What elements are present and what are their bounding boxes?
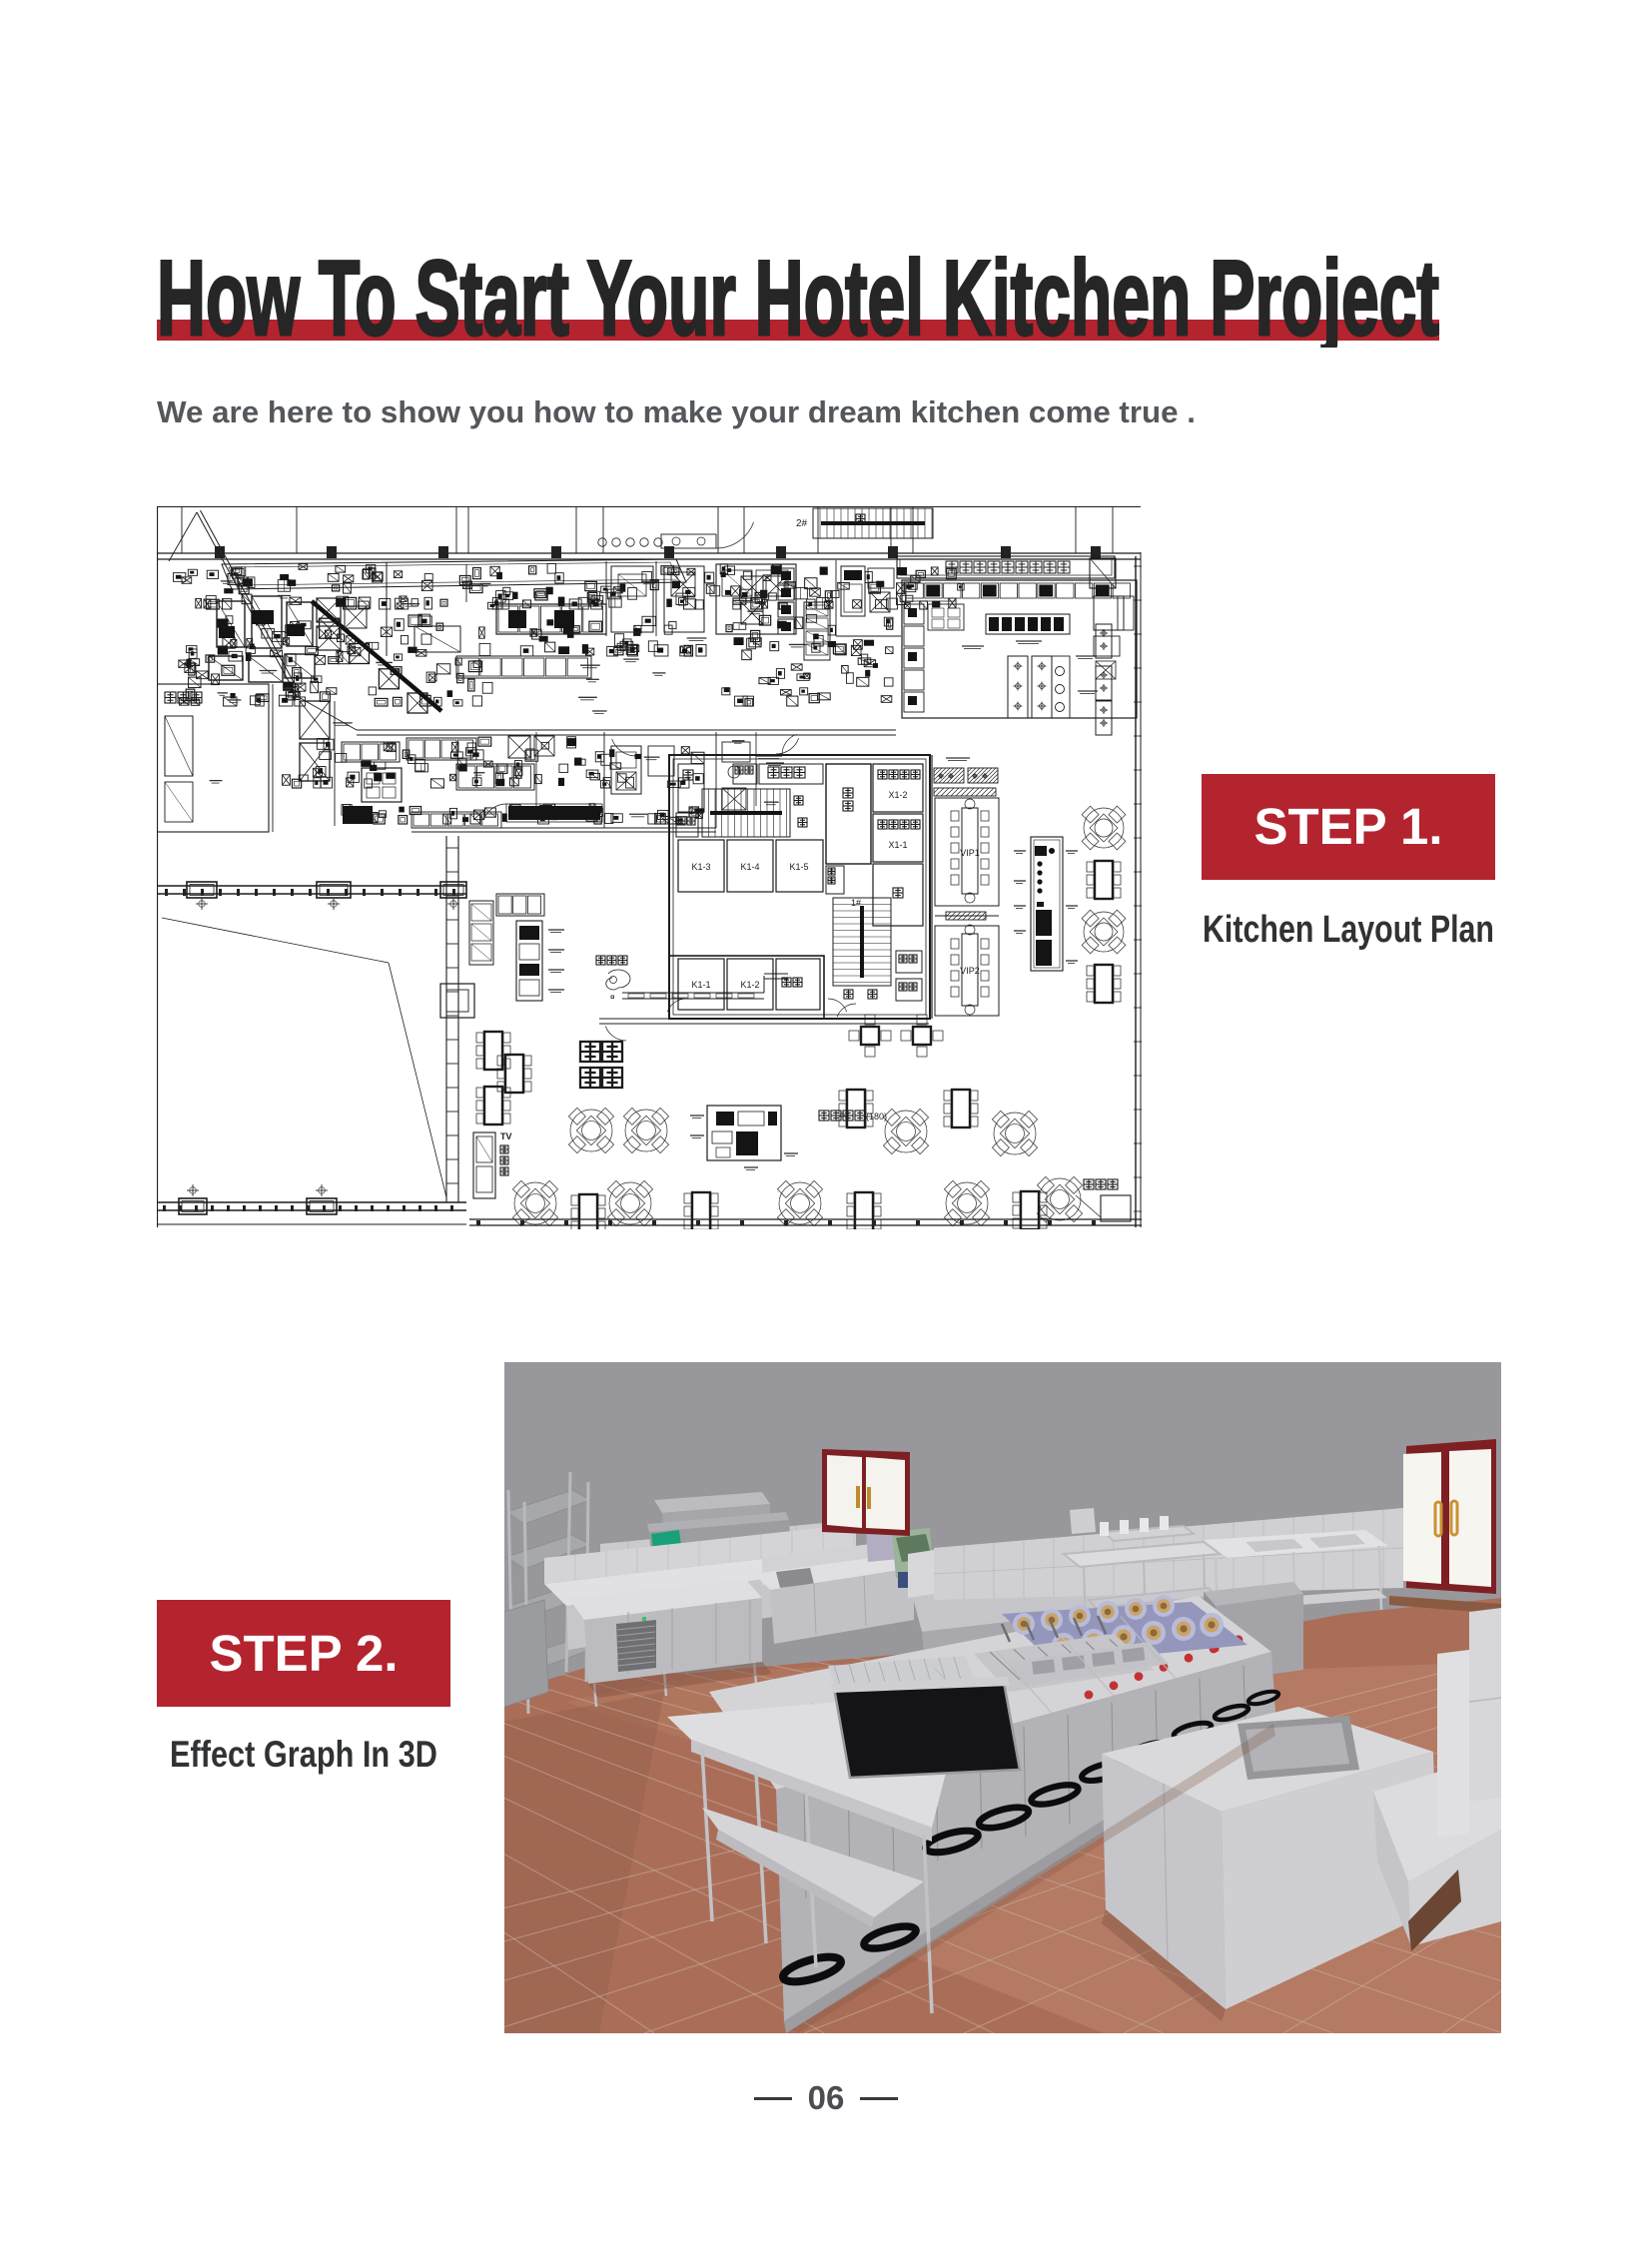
svg-text:K1-4: K1-4 [740, 862, 759, 872]
svg-text:VIP1: VIP1 [960, 848, 980, 858]
svg-text:K1-2: K1-2 [740, 980, 759, 990]
svg-text:Kitchen Layout Plan: Kitchen Layout Plan [1203, 909, 1494, 951]
svg-text:Effect Graph In 3D: Effect Graph In 3D [170, 1734, 437, 1775]
svg-text:We are here to show you how to: We are here to show you how to make your… [157, 394, 1196, 429]
svg-text:X1-2: X1-2 [888, 790, 907, 800]
svg-text:2#: 2# [796, 518, 808, 529]
svg-text:VIP2: VIP2 [960, 966, 980, 976]
svg-text:TV: TV [500, 1131, 512, 1141]
svg-text:X1-1: X1-1 [888, 840, 907, 850]
svg-text:How To Start Your Hotel Kitche: How To Start Your Hotel Kitchen Project [157, 248, 1439, 348]
svg-text:K1-1: K1-1 [691, 980, 710, 990]
svg-text:1#: 1# [851, 898, 861, 908]
svg-text:K1-5: K1-5 [789, 862, 808, 872]
svg-text:K1-3: K1-3 [691, 862, 710, 872]
